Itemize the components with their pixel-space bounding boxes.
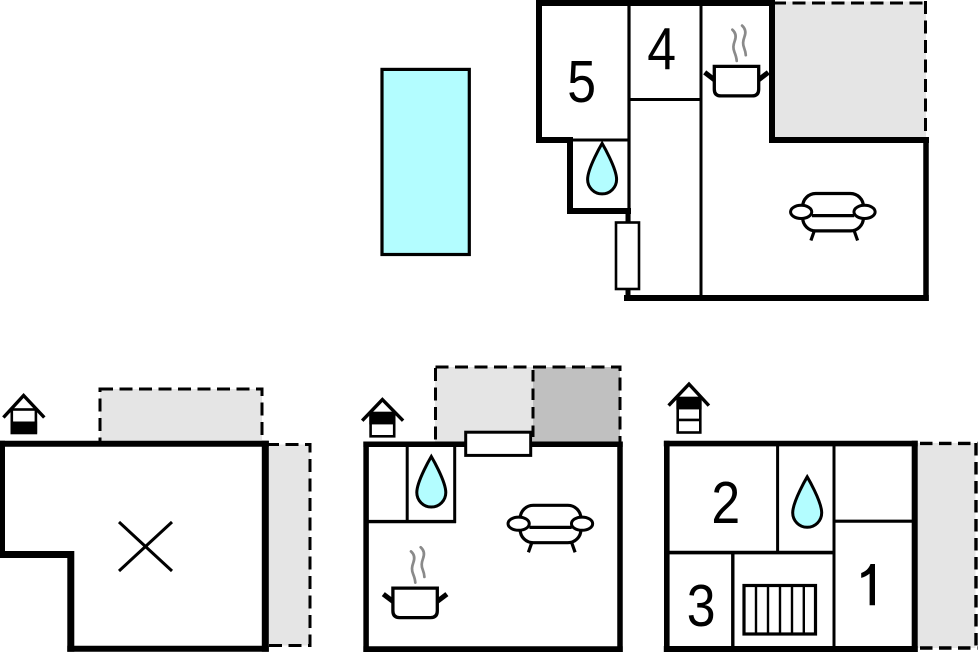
svg-text:4: 4 [647,16,676,82]
svg-text:3: 3 [687,572,716,638]
svg-text:5: 5 [567,49,596,115]
svg-text:2: 2 [711,470,740,536]
